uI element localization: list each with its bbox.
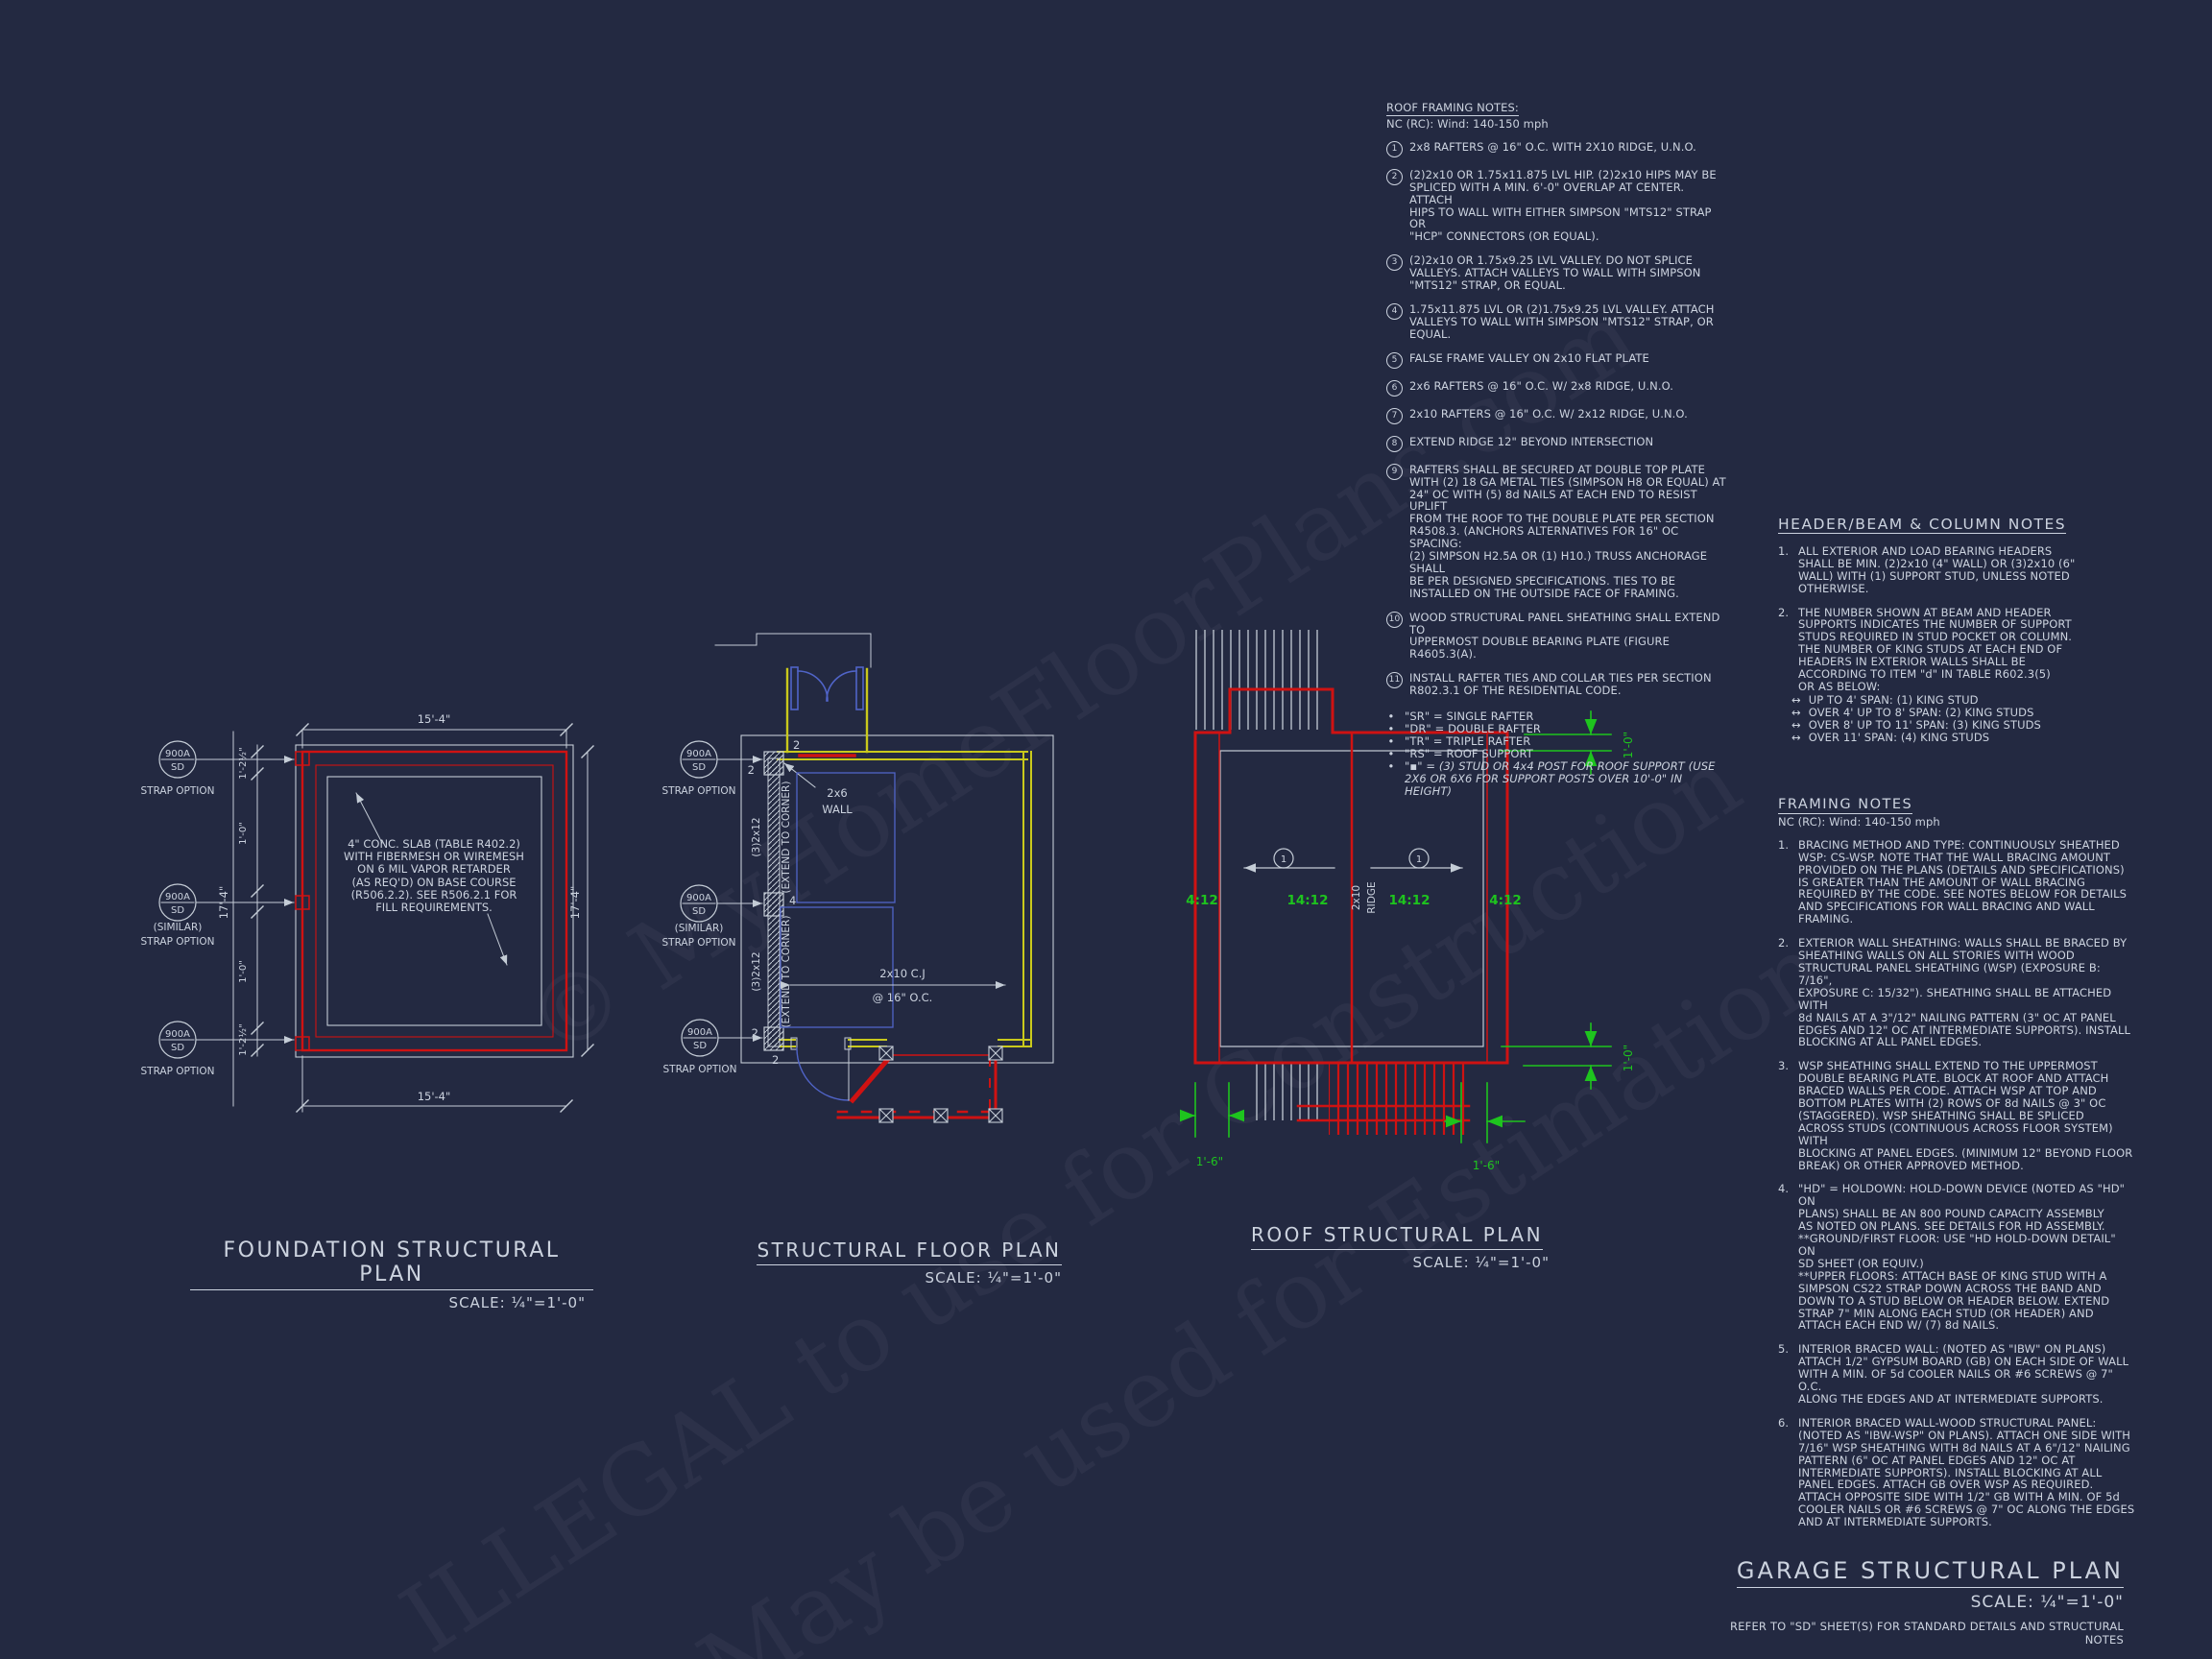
svg-text:SD: SD xyxy=(692,762,706,773)
svg-text:SD: SD xyxy=(692,906,706,917)
svg-text:(SIMILAR): (SIMILAR) xyxy=(675,923,724,934)
stud-count-3: 4 xyxy=(789,894,796,907)
stud-count-2: 2 xyxy=(748,763,755,777)
floor-bubble-2: 900A SD (SIMILAR) STRAP OPTION xyxy=(661,885,762,949)
framing-note: 3.WSP SHEATHING SHALL EXTEND TO THE UPPE… xyxy=(1778,1060,2135,1171)
framing-note: 4."HD" = HOLDOWN: HOLD-DOWN DEVICE (NOTE… xyxy=(1778,1183,2135,1332)
roof-note: 2(2)2x10 OR 1.75x11.875 LVL HIP. (2)2x10… xyxy=(1386,169,1728,243)
roof-note: 8EXTEND RIDGE 12" BEYOND INTERSECTION xyxy=(1386,436,1728,452)
foundation-bubble-1: 900A SD STRAP OPTION xyxy=(140,741,294,797)
roof-notes-title: ROOF FRAMING NOTES: xyxy=(1386,102,1519,116)
foundation-scale: SCALE: ¼"=1'-0" xyxy=(190,1294,593,1311)
king-stud-rule: ↔OVER 11' SPAN: (4) KING STUDS xyxy=(1791,732,2135,744)
svg-text:STRAP OPTION: STRAP OPTION xyxy=(140,1066,214,1077)
svg-text:(SIMILAR): (SIMILAR) xyxy=(154,922,203,933)
svg-text:SD: SD xyxy=(171,1043,184,1053)
svg-text:1: 1 xyxy=(1281,854,1286,865)
roof-note: 12x8 RAFTERS @ 16" O.C. WITH 2X10 RIDGE,… xyxy=(1386,141,1728,157)
roof-note: 3(2)2x10 OR 1.75x9.25 LVL VALLEY. DO NOT… xyxy=(1386,254,1728,292)
member-label-1: (3)2x12 xyxy=(751,817,762,856)
dim-bottom-left-label: 1'-6" xyxy=(1196,1155,1223,1168)
svg-text:900A: 900A xyxy=(165,1029,190,1040)
note-ref-right: 1 xyxy=(1371,849,1462,868)
slope-label-1: 4:12 xyxy=(1186,893,1218,908)
foundation-bubble-3: 900A SD STRAP OPTION xyxy=(140,1022,294,1077)
double-door xyxy=(791,667,863,709)
legend-item: •"RS" = ROOF SUPPORT xyxy=(1386,748,1728,760)
ridge-label-2: RIDGE xyxy=(1366,881,1378,913)
roof-scale: SCALE: ¼"=1'-0" xyxy=(1238,1254,1555,1271)
framing-notes: FRAMING NOTES NC (RC): Wind: 140-150 mph… xyxy=(1778,799,2135,1540)
framing-note: 1.BRACING METHOD AND TYPE: CONTINUOUSLY … xyxy=(1778,839,2135,926)
svg-text:SD: SD xyxy=(171,762,184,773)
joist-label-1: 2x10 C.J xyxy=(879,967,926,980)
roof-framing-notes: ROOF FRAMING NOTES: NC (RC): Wind: 140-1… xyxy=(1386,102,1728,797)
svg-text:STRAP OPTION: STRAP OPTION xyxy=(140,785,214,797)
header-note: 2.THE NUMBER SHOWN AT BEAM AND HEADER SU… xyxy=(1778,607,2135,693)
svg-text:SD: SD xyxy=(171,905,184,916)
foundation-title: FOUNDATION STRUCTURAL PLAN xyxy=(190,1238,593,1290)
framing-note: 5.INTERIOR BRACED WALL: (NOTED AS "IBW" … xyxy=(1778,1343,2135,1406)
king-stud-rule: ↔UP TO 4' SPAN: (1) KING STUD xyxy=(1791,694,2135,707)
slab-note: 4" CONC. SLAB (TABLE R402.2) WITH FIBERM… xyxy=(338,838,530,914)
foundation-title-block: FOUNDATION STRUCTURAL PLAN SCALE: ¼"=1'-… xyxy=(190,1238,593,1311)
foundation-dim-seg3: 1'-0" xyxy=(238,960,249,983)
svg-text:SD: SD xyxy=(693,1041,707,1051)
framing-notes-title: FRAMING NOTES xyxy=(1778,799,1912,814)
wall-callout-1: 2x6 xyxy=(827,786,847,800)
svg-text:900A: 900A xyxy=(687,1027,712,1038)
framing-note: 2.EXTERIOR WALL SHEATHING: WALLS SHALL B… xyxy=(1778,937,2135,1048)
roof-note: 72x10 RAFTERS @ 16" O.C. W/ 2x12 RIDGE, … xyxy=(1386,408,1728,424)
rafter-hatch-bottom-red xyxy=(1329,1063,1465,1135)
header-notes-title: HEADER/BEAM & COLUMN NOTES xyxy=(1778,518,2066,534)
sheet-scale: SCALE: ¼"=1'-0" xyxy=(1701,1593,2124,1612)
framing-note: 6.INTERIOR BRACED WALL-WOOD STRUCTURAL P… xyxy=(1778,1417,2135,1528)
sheet-note: REFER TO "SD" SHEET(S) FOR STANDARD DETA… xyxy=(1701,1620,2124,1647)
svg-text:STRAP OPTION: STRAP OPTION xyxy=(662,1064,736,1075)
member-label-2: (3)2x12 xyxy=(751,951,762,991)
floor-plan: 2 2 4 2 2 (3)2x12 (EXTEND TO CORNER) (3)… xyxy=(661,634,1053,1122)
legend-item: •"▪" = (3) STUD OR 4x4 POST FOR ROOF SUP… xyxy=(1386,760,1728,798)
svg-text:900A: 900A xyxy=(686,749,711,759)
legend-item: •"DR" = DOUBLE RAFTER xyxy=(1386,723,1728,735)
member-note-2: (EXTEND TO CORNER) xyxy=(781,916,792,1028)
roof-title: ROOF STRUCTURAL PLAN xyxy=(1251,1223,1543,1250)
slope-label-2: 14:12 xyxy=(1287,893,1329,908)
header-note: 1.ALL EXTERIOR AND LOAD BEARING HEADERS … xyxy=(1778,545,2135,595)
svg-text:STRAP OPTION: STRAP OPTION xyxy=(661,937,735,949)
sheet-title-block: GARAGE STRUCTURAL PLAN SCALE: ¼"=1'-0" R… xyxy=(1701,1557,2124,1647)
king-stud-rule: ↔OVER 8' UP TO 11' SPAN: (3) KING STUDS xyxy=(1791,719,2135,732)
garage-door-bay xyxy=(838,1055,998,1118)
joist-label-2: @ 16" O.C. xyxy=(873,991,933,1004)
roof-title-block: ROOF STRUCTURAL PLAN SCALE: ¼"=1'-0" xyxy=(1238,1223,1555,1271)
note-ref-left: 1 xyxy=(1244,849,1334,868)
dim-right-bottom xyxy=(1502,1023,1611,1089)
foundation-dim-seg2: 1'-0" xyxy=(238,822,249,845)
roof-notes-subtitle: NC (RC): Wind: 140-150 mph xyxy=(1386,118,1728,131)
svg-text:STRAP OPTION: STRAP OPTION xyxy=(661,785,735,797)
foundation-dim-top: 15'-4" xyxy=(418,712,451,726)
stud-count-1: 2 xyxy=(793,738,800,752)
svg-text:900A: 900A xyxy=(165,749,190,759)
roof-note: 10WOOD STRUCTURAL PANEL SHEATHING SHALL … xyxy=(1386,612,1728,661)
roof-note: 41.75x11.875 LVL OR (2)1.75x9.25 LVL VAL… xyxy=(1386,303,1728,341)
roof-note: 9RAFTERS SHALL BE SECURED AT DOUBLE TOP … xyxy=(1386,464,1728,600)
foundation-dim-right: 17'-4" xyxy=(568,886,582,920)
dim-bottom-left xyxy=(1187,1083,1238,1137)
rafter-hatch-bottom-left xyxy=(1250,1063,1325,1120)
svg-text:STRAP OPTION: STRAP OPTION xyxy=(140,936,214,948)
slope-label-4: 4:12 xyxy=(1489,893,1522,908)
sheet-title: GARAGE STRUCTURAL PLAN xyxy=(1737,1557,2124,1588)
legend-item: •"TR" = TRIPLE RAFTER xyxy=(1386,735,1728,748)
ridge-label-1: 2x10 xyxy=(1351,885,1362,910)
wall-callout-2: WALL xyxy=(822,803,853,816)
roof-note: 11INSTALL RAFTER TIES AND COLLAR TIES PE… xyxy=(1386,672,1728,697)
slope-label-3: 14:12 xyxy=(1389,893,1431,908)
floor-bubble-3: 900A SD STRAP OPTION xyxy=(662,1020,762,1075)
foundation-dim-bottom: 15'-4" xyxy=(418,1090,451,1103)
svg-text:900A: 900A xyxy=(165,892,190,902)
floor-scale: SCALE: ¼"=1'-0" xyxy=(751,1269,1068,1286)
single-door-arc xyxy=(797,1048,849,1100)
floor-title: STRUCTURAL FLOOR PLAN xyxy=(757,1238,1061,1265)
dim-right-bottom-label: 1'-0" xyxy=(1622,1045,1635,1071)
rafter-hatch-top xyxy=(1192,630,1323,730)
svg-text:1: 1 xyxy=(1416,854,1422,865)
dim-bottom-right-label: 1'-6" xyxy=(1473,1159,1500,1172)
roof-note: 62x6 RAFTERS @ 16" O.C. W/ 2x8 RIDGE, U.… xyxy=(1386,380,1728,397)
header-beam-notes: HEADER/BEAM & COLUMN NOTES 1.ALL EXTERIO… xyxy=(1778,518,2135,744)
roof-note: 5FALSE FRAME VALLEY ON 2x10 FLAT PLATE xyxy=(1386,352,1728,369)
drawing-sheet: © MyHomeFloorPlans.com ILLEGAL to use fo… xyxy=(0,0,2212,1659)
stud-count-5: 2 xyxy=(772,1053,779,1067)
svg-text:900A: 900A xyxy=(686,893,711,903)
floor-title-block: STRUCTURAL FLOOR PLAN SCALE: ¼"=1'-0" xyxy=(751,1238,1068,1286)
foundation-dim-seg1: 1'-2½" xyxy=(237,747,249,779)
king-stud-rule: ↔OVER 4' UP TO 8' SPAN: (2) KING STUDS xyxy=(1791,707,2135,719)
member-note-1: (EXTEND TO CORNER) xyxy=(781,781,792,894)
framing-notes-subtitle: NC (RC): Wind: 140-150 mph xyxy=(1778,816,2135,829)
